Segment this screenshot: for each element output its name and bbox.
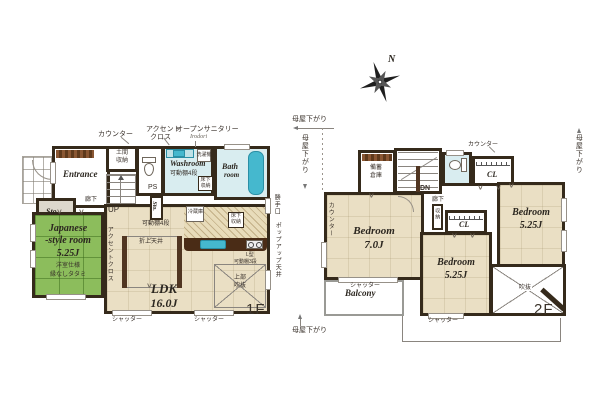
floorplan-canvas: ∨ ∨ ∨ ∨ カウンター アクセント クロス オープンサニタリー Irodor… [0, 0, 600, 406]
bathtub-icon [248, 151, 264, 195]
door-swing-icon: ∨ [451, 231, 458, 239]
floor-label-1f: 1F [246, 302, 266, 318]
label-bedroom-right-name: Bedroom [503, 208, 559, 219]
note-counter-1f: カウンター [98, 131, 133, 138]
label-balcony: Balcony [345, 289, 376, 298]
label-bath-2: room [224, 172, 239, 179]
label-hall-1f: 廊下 [85, 197, 97, 203]
label-void-2f: 吹抜 [518, 285, 532, 291]
label-japanese-2: -style room [32, 236, 104, 247]
label-stock-1: 備蓄 [360, 165, 392, 171]
label-coffered-ceiling: 折上天井 [138, 239, 164, 245]
label-bedroom-bottom-area: 5.25J [422, 271, 490, 282]
door-swing-icon: ∨ [78, 207, 85, 215]
eaves-outline [402, 341, 561, 342]
label-washer: 洗濯機 [196, 153, 212, 158]
note-open-sanitary: オープンサニタリー [176, 126, 239, 133]
label-lshelf-2: 可動棚3段 [234, 260, 257, 265]
label-storage-mid: Sto. [151, 201, 157, 211]
dimension-arrow [298, 314, 302, 319]
toilet-bowl-icon-2f [449, 160, 461, 170]
note-counter-2f: カウンター [468, 142, 498, 148]
stock-shelf-icon [362, 154, 392, 161]
wall-window [561, 230, 567, 252]
label-japanese-spec2: 縁なしタタミ [32, 272, 104, 278]
label-popup-ceiling: ポップアップ天井 [274, 222, 280, 292]
shutter-window [194, 310, 234, 316]
sink-icon [173, 150, 185, 157]
label-backdoor: 勝手口 [273, 194, 279, 218]
label-fridge: 冷蔵庫 [188, 210, 203, 215]
label-shutter-1f-a: シャッター [112, 317, 142, 323]
label-shutter-1f-b: シャッター [194, 317, 224, 323]
label-upper-void-2: 吹抜 [228, 283, 252, 289]
label-hall-2f: 廊下 [432, 197, 444, 203]
door-swing-icon: ∨ [508, 181, 515, 189]
label-underfloor-kitchen-2: 収納 [228, 220, 244, 225]
note-accent-cross-2: クロス [150, 134, 171, 141]
shutter-window [112, 310, 152, 316]
entrance-door-opening [50, 162, 56, 184]
kitchen-sink-icon [200, 240, 226, 249]
dimension-line [322, 128, 323, 190]
eaves-outline [402, 316, 403, 342]
dimension-line [300, 318, 301, 326]
label-bedroom-bottom-name: Bedroom [422, 258, 490, 269]
moya-label-left: 母屋下がり [301, 134, 308, 182]
label-bedroom-right-area: 5.25J [503, 221, 559, 232]
label-washroom-shelf: 可動棚4段 [170, 171, 197, 177]
callout-line [195, 141, 196, 147]
label-closet-mid: CL [459, 221, 469, 229]
label-ldk-area: 16.0J [134, 297, 194, 310]
burner-icon [248, 242, 254, 248]
label-doma-2: 収納 [106, 158, 138, 164]
label-counter-vertical: カウンター [327, 202, 333, 246]
label-up: UP [108, 206, 119, 214]
label-lshelf-1: L型 [246, 253, 254, 258]
wall-window [224, 144, 250, 150]
door-swing-icon: ∨ [477, 183, 484, 191]
ceiling-beam-icon [122, 236, 127, 288]
wall-window [561, 198, 567, 222]
door-swing-icon: ∨ [495, 183, 502, 191]
label-ldk-shelf: 可動棚4段 [142, 221, 169, 227]
stairs-up-arrow [120, 179, 121, 203]
moya-label-right: 母屋下がり [575, 134, 582, 182]
label-japanese-spec1: 洋室仕様 [32, 263, 104, 269]
wall-window [446, 150, 464, 156]
dimension-arrow [303, 184, 307, 189]
label-shutter-2f-b: シャッター [428, 318, 458, 324]
dimension-arrow [577, 128, 581, 133]
closet-rod-line [476, 165, 510, 166]
moya-label-topleft: 母屋下がり [292, 116, 327, 123]
label-shutter-2f-a: シャッター [350, 283, 380, 289]
label-accent-wall: アクセントクロス [106, 226, 112, 290]
label-closet-top: CL [487, 171, 497, 179]
label-underfloor-wash-2: 収納 [198, 184, 213, 189]
label-entrance: Entrance [63, 170, 98, 179]
door-swing-icon: ∨ [469, 231, 476, 239]
label-ldk-name: LDK [134, 282, 194, 296]
label-storage-left: Sto. [46, 208, 59, 216]
eaves-outline [560, 318, 561, 342]
label-ps: PS [148, 184, 157, 191]
label-doma-1: 土間 [106, 150, 138, 156]
note-irodori: Irodori [190, 134, 207, 140]
moya-label-bottom: 母屋下がり [292, 327, 327, 334]
door-swing-icon: ∨ [368, 191, 375, 199]
wall-window [265, 270, 271, 290]
label-stock-2: 倉庫 [360, 173, 392, 179]
dimension-arrow [293, 126, 298, 130]
label-japanese-area: 5.25J [32, 249, 104, 260]
burner-icon [256, 242, 262, 248]
label-washroom: Washroom [170, 160, 205, 168]
wall-window [46, 294, 86, 300]
label-japanese-1: Japanese [32, 224, 104, 235]
shoe-shelf-icon [56, 150, 94, 158]
ceiling-beam-icon [177, 236, 182, 288]
label-dn: DN [420, 185, 430, 192]
label-bedroom7-area: 7.0J [334, 240, 414, 252]
dimension-line [298, 128, 334, 129]
toilet-icon-2f [461, 158, 467, 172]
floor-label-2f: 2F [534, 302, 554, 318]
compass-icon [358, 60, 402, 104]
backdoor-opening [265, 198, 271, 214]
label-storage-2f: 収納 [434, 208, 439, 226]
label-bedroom7-name: Bedroom [334, 226, 414, 238]
label-upper-void-1: 上部 [228, 275, 252, 281]
compass-north-label: N [388, 55, 395, 66]
stairs-up-arrowhead [118, 175, 124, 180]
